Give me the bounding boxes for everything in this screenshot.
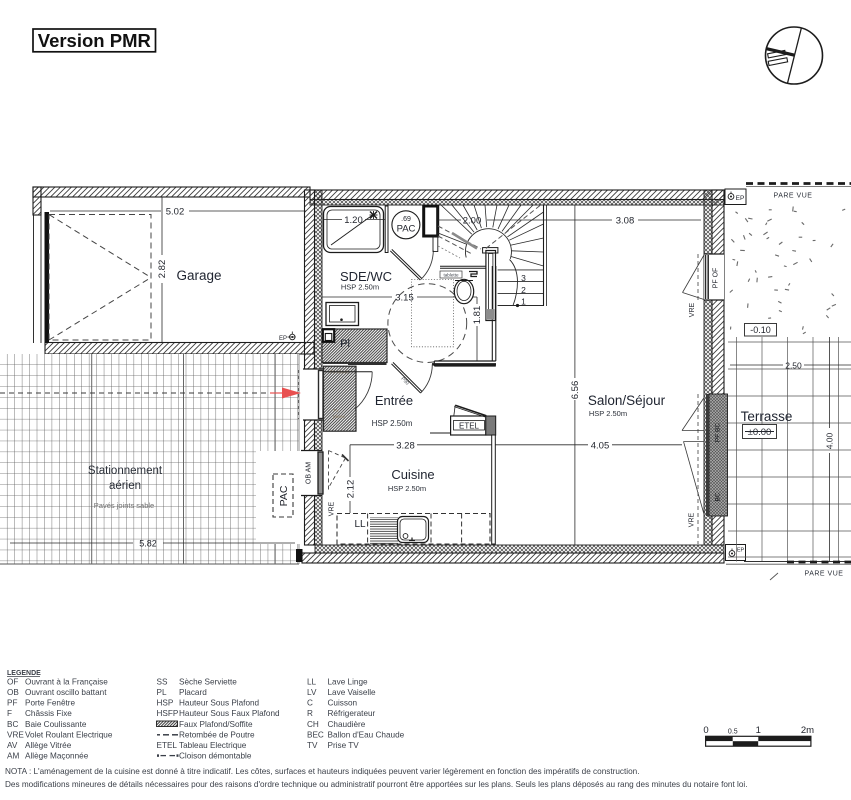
svg-text:Lave Vaiselle: Lave Vaiselle: [328, 688, 377, 697]
svg-text:3.15: 3.15: [395, 293, 414, 304]
svg-text:Volet Roulant Electrique: Volet Roulant Electrique: [25, 730, 113, 739]
svg-text:CH: CH: [307, 720, 319, 729]
svg-text:PAC: PAC: [397, 224, 416, 235]
svg-text:2: 2: [521, 285, 526, 295]
svg-text:4.00: 4.00: [825, 432, 835, 449]
svg-text:-0.10: -0.10: [750, 325, 771, 335]
svg-text:PF: PF: [7, 699, 17, 708]
svg-text:HSP 2.50m: HSP 2.50m: [388, 484, 426, 493]
svg-text:HSFP: HSFP: [157, 709, 179, 718]
svg-text:Faux Plafond/Soffite: Faux Plafond/Soffite: [179, 720, 253, 729]
svg-text:OB AM: OB AM: [306, 462, 313, 484]
svg-text:EP: EP: [737, 548, 745, 554]
svg-text:Lave Linge: Lave Linge: [328, 678, 369, 687]
svg-text:3.28: 3.28: [396, 441, 415, 452]
svg-text:Châssis Fixe: Châssis Fixe: [25, 709, 72, 718]
svg-text:2.12: 2.12: [346, 480, 357, 499]
svg-text:5.82: 5.82: [139, 539, 157, 549]
svg-text:TV: TV: [307, 741, 318, 750]
svg-text:Ballon d'Eau Chaude: Ballon d'Eau Chaude: [328, 730, 405, 739]
svg-text:OF: OF: [7, 678, 18, 687]
svg-text:Fx: Fx: [334, 408, 340, 413]
svg-text:EP: EP: [736, 195, 745, 202]
svg-text:Garage: Garage: [176, 268, 221, 283]
svg-text:OB: OB: [7, 688, 19, 697]
svg-text:tablette: tablette: [443, 273, 459, 278]
svg-text:PF BC: PF BC: [715, 423, 722, 442]
svg-text:EP: EP: [279, 336, 287, 342]
svg-text:HSP 2.50m: HSP 2.50m: [589, 409, 627, 418]
svg-text:Chaudière: Chaudière: [328, 720, 366, 729]
svg-text:PF OF: PF OF: [713, 268, 720, 289]
svg-text:C: C: [307, 699, 313, 708]
svg-text:AM: AM: [7, 751, 19, 760]
svg-text:4.05: 4.05: [591, 441, 610, 452]
svg-text:R: R: [307, 709, 313, 718]
svg-text:2.50: 2.50: [785, 361, 802, 371]
svg-text:Allège Maçonnée: Allège Maçonnée: [25, 751, 89, 760]
svg-text:.69: .69: [401, 216, 411, 223]
svg-text:VRE: VRE: [689, 302, 696, 317]
svg-text:Allège Vitrée: Allège Vitrée: [25, 741, 72, 750]
svg-text:VRE: VRE: [329, 501, 336, 516]
svg-text:1.20: 1.20: [344, 215, 363, 226]
svg-text:Ouvrant à la Française: Ouvrant à la Française: [25, 678, 108, 687]
svg-text:aérien: aérien: [109, 480, 141, 492]
svg-text:Des modifications mineures de: Des modifications mineures de détails né…: [5, 780, 748, 789]
svg-text:Réfrigerateur: Réfrigerateur: [328, 709, 376, 718]
svg-text:Hauteur Sous Plafond: Hauteur Sous Plafond: [179, 699, 260, 708]
svg-text:BC: BC: [7, 720, 18, 729]
svg-text:AV: AV: [7, 741, 18, 750]
svg-text:BC: BC: [715, 492, 722, 501]
svg-text:Stationnement: Stationnement: [88, 465, 163, 477]
svg-text:PARE VUE: PARE VUE: [805, 571, 844, 578]
svg-text:2.82: 2.82: [157, 260, 168, 279]
svg-text:6.56: 6.56: [570, 381, 581, 400]
svg-text:Terrasse: Terrasse: [741, 409, 793, 424]
svg-text:1: 1: [756, 725, 761, 736]
svg-text:Retombée de Poutre: Retombée de Poutre: [179, 730, 255, 739]
svg-text:2m: 2m: [801, 725, 814, 736]
svg-text:Prise TV: Prise TV: [328, 741, 360, 750]
svg-text:F: F: [7, 709, 12, 718]
svg-text:Placard: Placard: [179, 688, 207, 697]
svg-text:Salon/Séjour: Salon/Séjour: [588, 393, 666, 408]
svg-text:PL: PL: [157, 688, 167, 697]
svg-text:Porte Fenêtre: Porte Fenêtre: [25, 699, 76, 708]
svg-text:Cuisson: Cuisson: [328, 699, 358, 708]
svg-text:LL: LL: [354, 519, 366, 530]
svg-text:NOTA : L'aménagement de la cui: NOTA : L'aménagement de la cuisine est d…: [5, 767, 639, 776]
svg-text:Tableau Electrique: Tableau Electrique: [179, 741, 247, 750]
svg-text:Pavés joints sable: Pavés joints sable: [94, 501, 154, 510]
svg-text:HSP: HSP: [157, 699, 174, 708]
svg-text:Cuisine: Cuisine: [391, 467, 434, 482]
svg-text:0.5: 0.5: [728, 729, 738, 736]
svg-text:3.08: 3.08: [616, 216, 635, 227]
svg-text:1.81: 1.81: [472, 306, 483, 325]
svg-text:1: 1: [521, 297, 526, 307]
svg-text:VRE: VRE: [7, 730, 24, 739]
svg-text:LL: LL: [307, 678, 317, 687]
svg-text:ETEL: ETEL: [157, 741, 178, 750]
svg-text:Version PMR: Version PMR: [38, 30, 151, 51]
svg-text:BEC: BEC: [307, 730, 324, 739]
svg-text:HSP 2.50m: HSP 2.50m: [341, 283, 379, 292]
svg-text:0: 0: [703, 725, 708, 736]
svg-text:VRE: VRE: [689, 512, 696, 527]
svg-text:Hauteur Sous Faux Plafond: Hauteur Sous Faux Plafond: [179, 709, 280, 718]
svg-text:Entrée: Entrée: [375, 393, 413, 408]
svg-text:Ouvrant oscillo battant: Ouvrant oscillo battant: [25, 688, 107, 697]
svg-text:ETEL: ETEL: [459, 422, 480, 431]
svg-text:±0.00: ±0.00: [748, 427, 772, 438]
svg-text:3: 3: [521, 273, 526, 283]
svg-text:LEGENDE: LEGENDE: [7, 670, 41, 677]
svg-text:2.00: 2.00: [463, 216, 482, 227]
svg-text:Cloison démontable: Cloison démontable: [179, 751, 252, 760]
svg-text:PARE VUE: PARE VUE: [774, 193, 813, 200]
svg-text:PAC: PAC: [278, 485, 290, 506]
svg-text:SS: SS: [157, 678, 168, 687]
svg-text:5.02: 5.02: [166, 207, 185, 218]
svg-text:LV: LV: [307, 688, 317, 697]
svg-text:Baie Coulissante: Baie Coulissante: [25, 720, 87, 729]
svg-text:HSP 2.50m: HSP 2.50m: [372, 419, 413, 428]
svg-text:pleine: pleine: [333, 414, 345, 419]
svg-text:Sèche Serviette: Sèche Serviette: [179, 678, 237, 687]
svg-text:Pl: Pl: [340, 338, 350, 350]
